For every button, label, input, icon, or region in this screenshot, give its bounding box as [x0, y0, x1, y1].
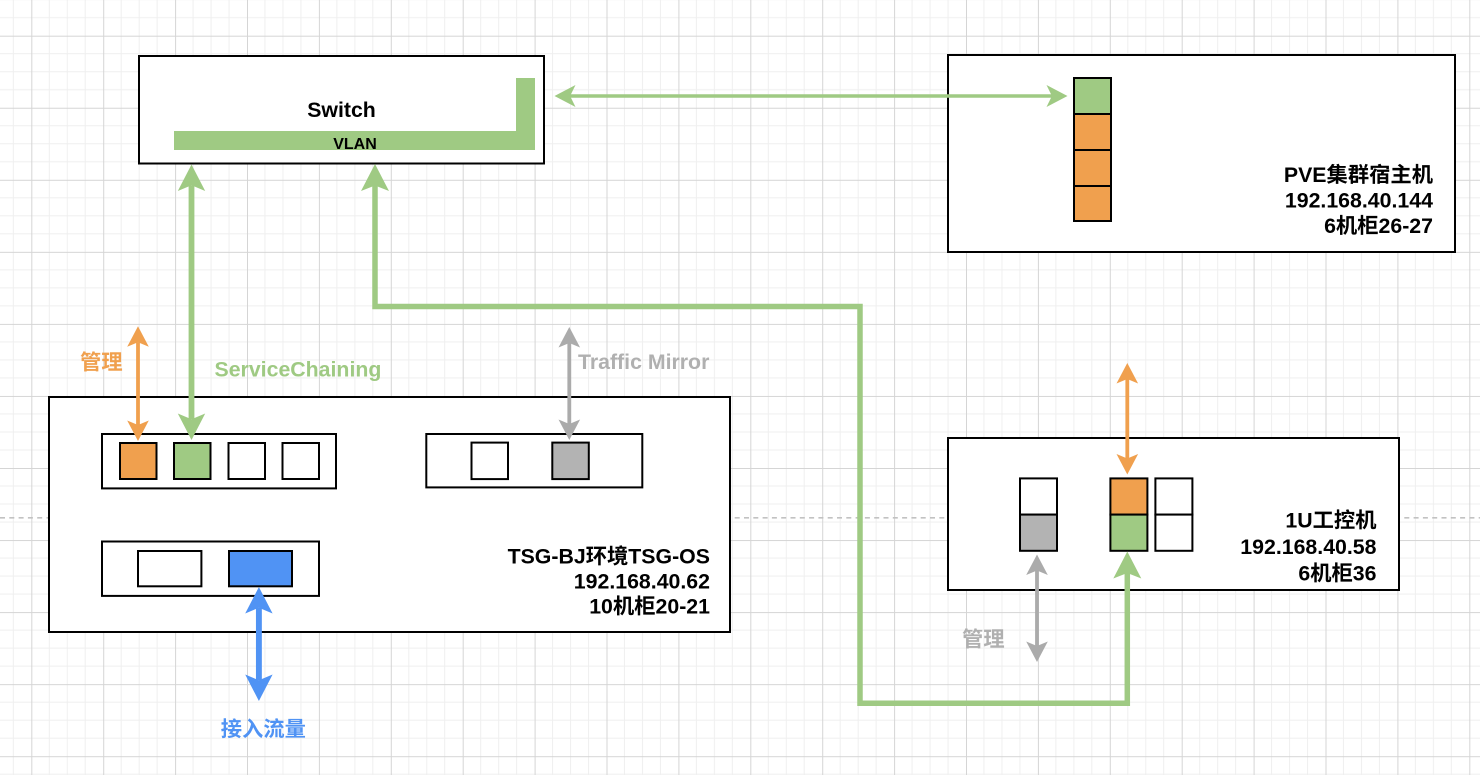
svg-text:36: 36 — [1353, 562, 1377, 586]
svg-text:TSG-BJ: TSG-BJ — [508, 545, 586, 569]
svg-text:Switch: Switch — [307, 98, 376, 122]
svg-text:1U: 1U — [1285, 509, 1312, 533]
svg-text:192.168.40.144: 192.168.40.144 — [1285, 189, 1433, 213]
svg-text:TSG-OS: TSG-OS — [628, 545, 710, 569]
svg-text:6: 6 — [1324, 214, 1336, 238]
svg-text:26-27: 26-27 — [1379, 214, 1433, 238]
svg-text:VLAN: VLAN — [333, 136, 377, 153]
svg-text:PVE: PVE — [1284, 163, 1327, 187]
svg-text:20-21: 20-21 — [656, 595, 711, 619]
svg-text:ServiceChaining: ServiceChaining — [215, 358, 382, 382]
svg-text:192.168.40.62: 192.168.40.62 — [574, 570, 710, 594]
svg-text:10: 10 — [589, 595, 613, 619]
svg-text:Traffic Mirror: Traffic Mirror — [578, 350, 709, 374]
svg-text:6: 6 — [1298, 562, 1310, 586]
svg-text:192.168.40.58: 192.168.40.58 — [1240, 535, 1376, 559]
